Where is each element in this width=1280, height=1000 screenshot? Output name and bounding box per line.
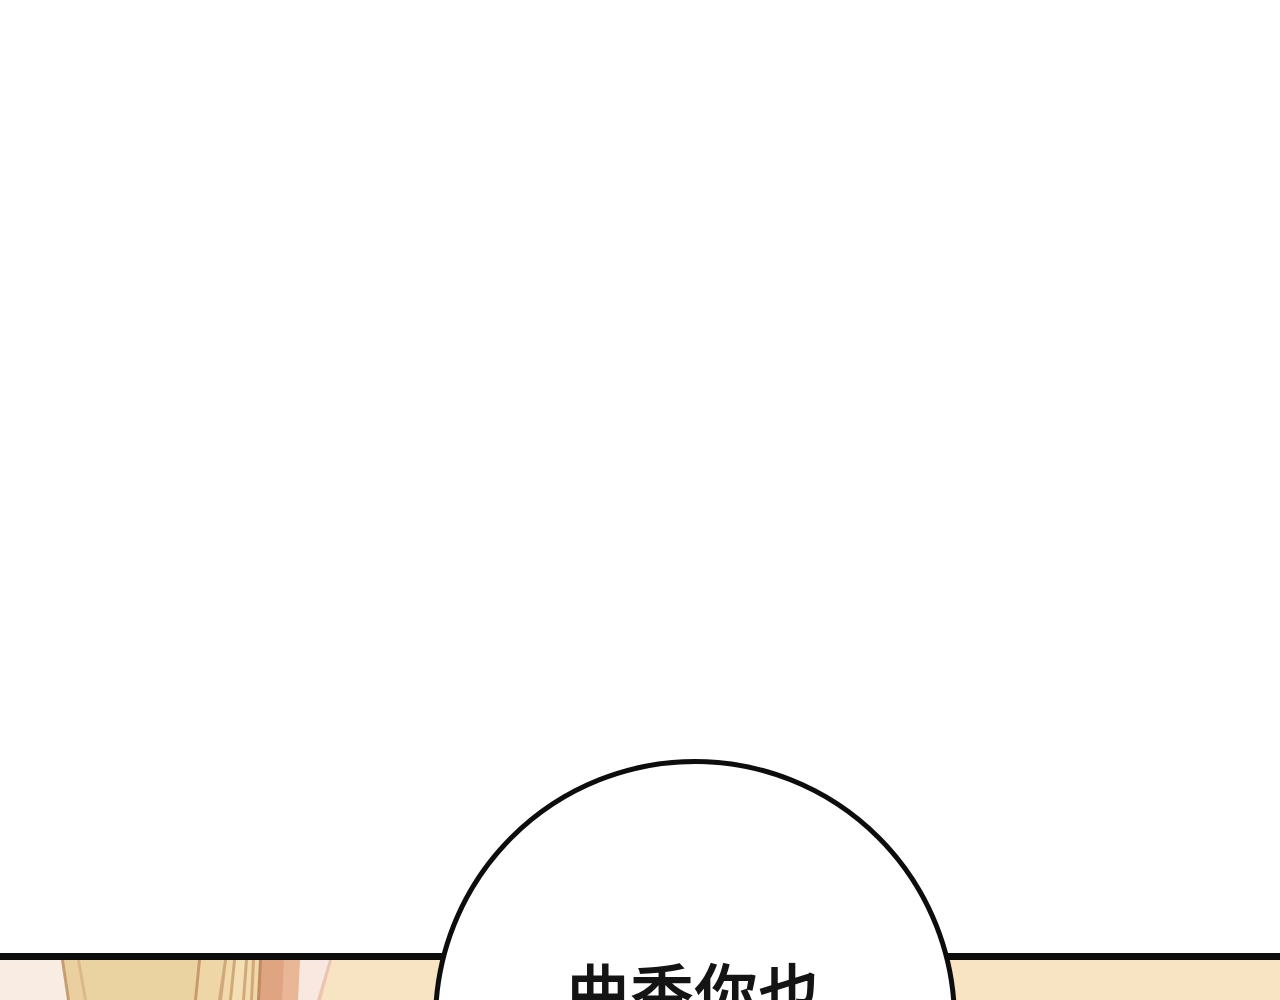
speech-bubble-text: 曲香你也 — [438, 962, 952, 1000]
webtoon-page: 曲香你也 — [0, 0, 1280, 1000]
